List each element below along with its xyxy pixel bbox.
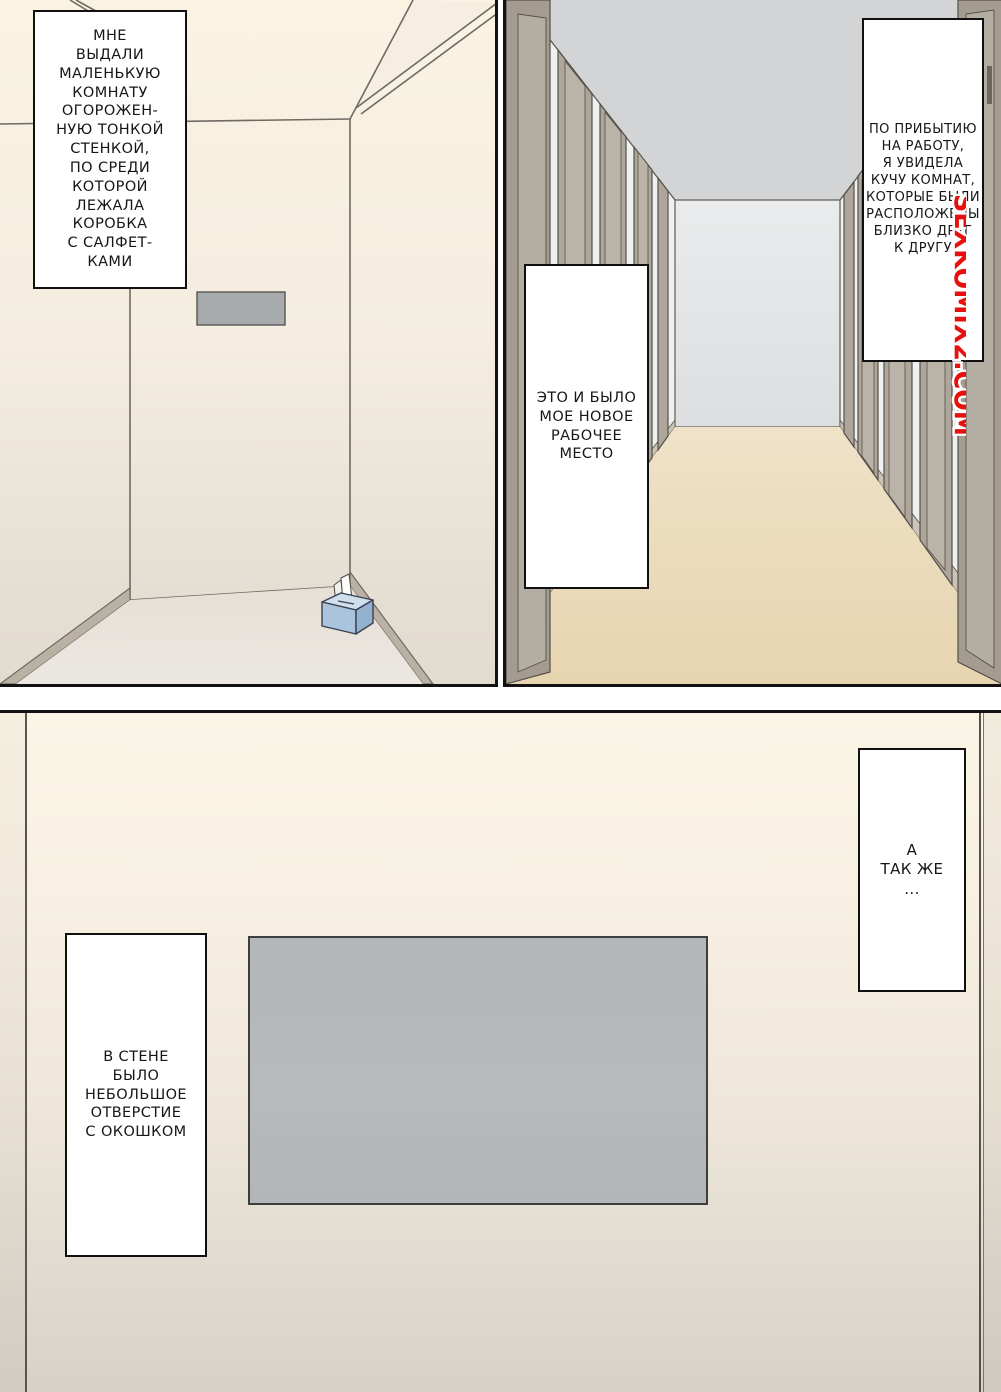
caption-arrival: ПО ПРИБЫТИЮ НА РАБОТУ, Я УВИДЕЛА КУЧУ КО… bbox=[862, 18, 984, 362]
comic-page: МНЕ ВЫДАЛИ МАЛЕНЬКУЮ КОМНАТУ ОГОРОЖЕН- Н… bbox=[0, 0, 1001, 1392]
wall-right-section bbox=[984, 713, 1001, 1392]
door-hinge bbox=[987, 66, 992, 104]
wall-left-section bbox=[0, 713, 25, 1392]
caption-window: В СТЕНЕ БЫЛО НЕБОЛЬШОЕ ОТВЕРСТИЕ С ОКОШК… bbox=[65, 933, 207, 1257]
hall-back-wall bbox=[675, 200, 840, 427]
wall-corner-line-left bbox=[25, 713, 27, 1392]
wall-vent bbox=[197, 292, 285, 325]
window-opening bbox=[248, 936, 708, 1205]
caption-also: А ТАК ЖЕ ... bbox=[858, 748, 966, 992]
door bbox=[844, 182, 854, 447]
caption-workplace: ЭТО И БЫЛО МОЕ НОВОЕ РАБОЧЕЕ МЕСТО bbox=[524, 264, 649, 589]
door bbox=[658, 178, 668, 450]
wall-corner-line-right bbox=[979, 713, 984, 1392]
caption-room: МНЕ ВЫДАЛИ МАЛЕНЬКУЮ КОМНАТУ ОГОРОЖЕН- Н… bbox=[33, 10, 187, 289]
